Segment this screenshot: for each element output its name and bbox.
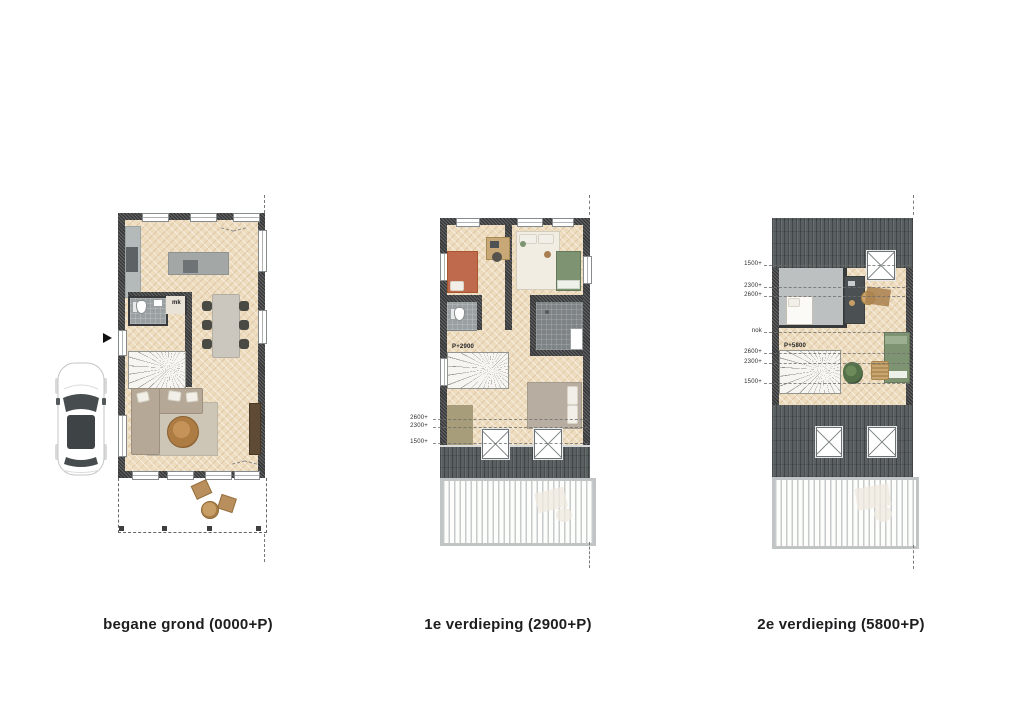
guide-line xyxy=(913,195,914,215)
caption-1e-verdieping: 1e verdieping (2900+P) xyxy=(388,616,628,633)
caption-begane-grond: begane grond (0000+P) xyxy=(58,616,318,633)
desk-item xyxy=(849,300,855,306)
height-label: 2300+ xyxy=(734,283,762,290)
caption-2e-verdieping: 2e verdieping (5800+P) xyxy=(720,616,962,633)
height-line xyxy=(764,287,910,288)
height-line xyxy=(764,353,910,354)
height-label: 1500+ xyxy=(734,261,762,268)
roof-window xyxy=(816,427,842,457)
floorplan-sheet: mk xyxy=(0,0,1018,720)
height-line xyxy=(764,265,910,266)
knee-wall xyxy=(772,268,779,405)
height-line xyxy=(764,296,910,297)
bed-pillow xyxy=(788,298,800,307)
roof-window xyxy=(868,427,896,457)
ghost-furniture xyxy=(874,506,892,522)
plan-2e-verdieping: P+5800 1500+ 2300+ 2600+ nok 2600+ 2300+… xyxy=(0,0,1018,720)
ridge-label: nok xyxy=(734,328,762,335)
height-label: 1500+ xyxy=(734,379,762,386)
peil-label-second: P+5800 xyxy=(784,343,806,350)
ridge-line xyxy=(764,332,910,333)
height-label: 2600+ xyxy=(734,292,762,299)
height-line xyxy=(764,383,910,384)
veranda-slats-second xyxy=(772,477,919,549)
height-line xyxy=(764,363,910,364)
bed-pillow-green xyxy=(885,336,907,344)
desk-item xyxy=(848,281,855,286)
height-label: 2600+ xyxy=(734,349,762,356)
guide-line xyxy=(913,545,914,569)
plant xyxy=(843,362,863,384)
staircase-second xyxy=(779,350,841,394)
height-label: 2300+ xyxy=(734,359,762,366)
